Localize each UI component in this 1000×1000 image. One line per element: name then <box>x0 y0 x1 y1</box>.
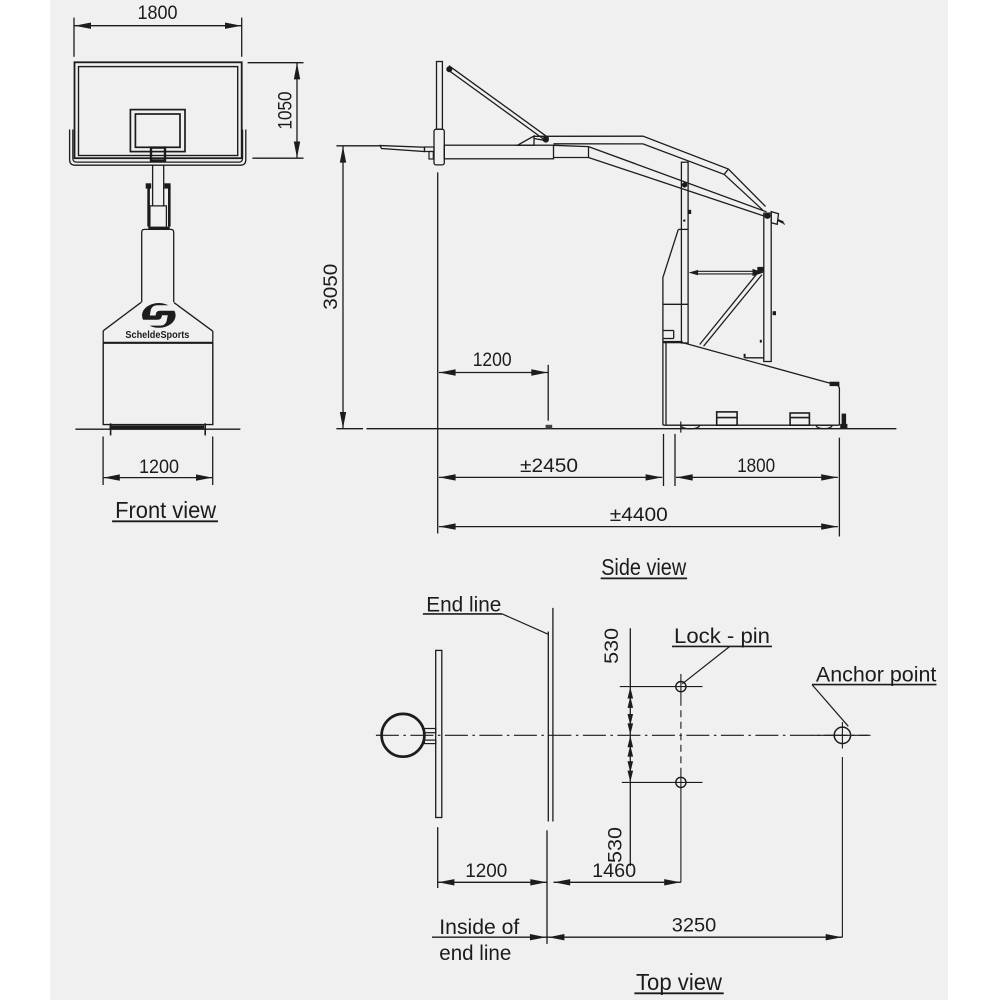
svg-text:1460: 1460 <box>592 860 636 882</box>
svg-text:Inside of: Inside of <box>439 915 519 939</box>
svg-text:1050: 1050 <box>274 91 296 129</box>
svg-text:530: 530 <box>605 827 627 863</box>
svg-text:End line: End line <box>426 592 501 616</box>
svg-text:Anchor point: Anchor point <box>816 662 937 686</box>
svg-text:±4400: ±4400 <box>610 504 668 526</box>
svg-text:1800: 1800 <box>737 455 775 477</box>
svg-text:1200: 1200 <box>139 456 179 478</box>
svg-text:Lock - pin: Lock - pin <box>674 624 770 648</box>
svg-text:1800: 1800 <box>138 2 178 24</box>
svg-text:Front view: Front view <box>115 497 217 523</box>
svg-text:Side view: Side view <box>601 554 687 580</box>
svg-text:3250: 3250 <box>672 915 717 937</box>
svg-text:Top view: Top view <box>636 969 723 995</box>
svg-text:1200: 1200 <box>473 349 512 371</box>
svg-text:ScheldeSports: ScheldeSports <box>125 329 189 341</box>
svg-text:1200: 1200 <box>465 860 507 882</box>
svg-text:530: 530 <box>601 628 623 664</box>
svg-text:3050: 3050 <box>320 264 342 310</box>
svg-text:end line: end line <box>439 941 511 965</box>
svg-text:±2450: ±2450 <box>520 455 578 477</box>
